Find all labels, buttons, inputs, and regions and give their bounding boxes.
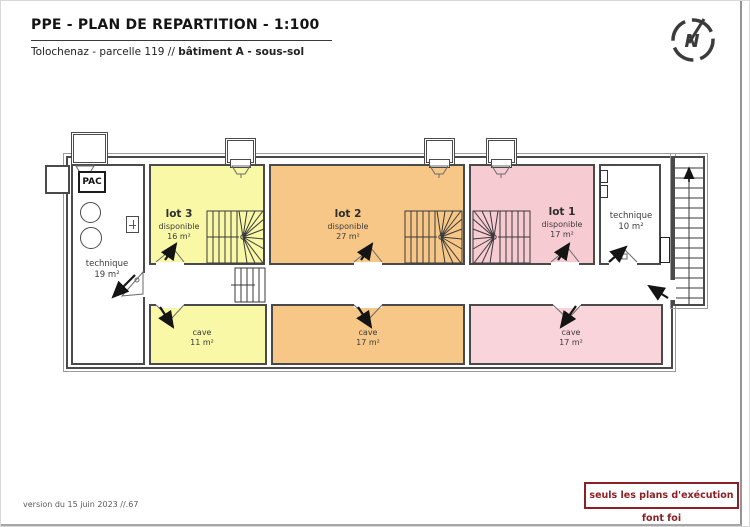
- light-well-left: [71, 132, 108, 165]
- lot3-status: disponible: [144, 222, 214, 232]
- lot2-status: disponible: [313, 222, 383, 232]
- lot2-area: 27 m²: [313, 232, 383, 242]
- page-edge-right: [740, 1, 742, 527]
- page-subtitle: Tolochenaz - parcelle 119 // bâtiment A …: [31, 46, 304, 58]
- subtitle-location: Tolochenaz - parcelle 119 //: [31, 46, 178, 58]
- cave-lot2-area: 17 m²: [333, 338, 403, 348]
- boiler-tank-icon: [80, 202, 101, 223]
- cave-lot3-area: 11 m²: [167, 338, 237, 348]
- label-technique-left: technique 19 m²: [73, 259, 141, 281]
- label-technique-right: technique 10 m²: [597, 211, 665, 233]
- north-compass-icon: N: [667, 14, 719, 66]
- lot3-name: lot 3: [144, 208, 214, 222]
- boiler-tank-icon: [80, 227, 102, 249]
- pac-exterior-unit: [45, 165, 70, 194]
- technique-right-name: technique: [597, 211, 665, 222]
- lot1-name: lot 1: [527, 206, 597, 220]
- title-underline: [31, 40, 332, 41]
- page-title: PPE - PLAN DE REPARTITION - 1:100: [31, 17, 319, 33]
- cave-lot3-name: cave: [167, 328, 237, 338]
- window-recess-lot3: [230, 159, 251, 168]
- cave-lot2-name: cave: [333, 328, 403, 338]
- technique-left-name: technique: [73, 259, 141, 270]
- label-cave-lot3: cave 11 m²: [167, 328, 237, 349]
- subtitle-building: bâtiment A - sous-sol: [178, 46, 304, 58]
- version-note: version du 15 juin 2023 //.67: [23, 500, 138, 509]
- lot2-name: lot 2: [313, 208, 383, 222]
- lot1-area: 17 m²: [527, 230, 597, 240]
- disclaimer-box: seuls les plans d'exécution font foi: [584, 482, 739, 509]
- technique-right-area: 10 m²: [597, 222, 665, 233]
- cave-lot1-name: cave: [536, 328, 606, 338]
- exterior-stairwell: [673, 156, 705, 306]
- label-lot3: lot 3 disponible 16 m²: [144, 208, 214, 242]
- floor-plan-page: PPE - PLAN DE REPARTITION - 1:100 Toloch…: [0, 0, 750, 527]
- label-cave-lot1: cave 17 m²: [536, 328, 606, 349]
- technique-left-area: 19 m²: [73, 270, 141, 281]
- lot3-area: 16 m²: [144, 232, 214, 242]
- label-lot2: lot 2 disponible 27 m²: [313, 208, 383, 242]
- electrical-box-icon: [126, 216, 139, 233]
- wall-panel-icon: [600, 185, 608, 198]
- label-lot1: lot 1 disponible 17 m²: [527, 206, 597, 240]
- wall-panel-icon: [600, 170, 608, 183]
- pac-unit: PAC: [78, 171, 106, 193]
- page-edge-bottom: [1, 524, 742, 526]
- stairwell-door: [660, 237, 670, 263]
- window-recess-lot1: [491, 159, 512, 168]
- compass-north-letter: N: [684, 31, 699, 52]
- lot1-status: disponible: [527, 220, 597, 230]
- window-recess-lot2: [429, 159, 450, 168]
- cave-lot1-area: 17 m²: [536, 338, 606, 348]
- label-cave-lot2: cave 17 m²: [333, 328, 403, 349]
